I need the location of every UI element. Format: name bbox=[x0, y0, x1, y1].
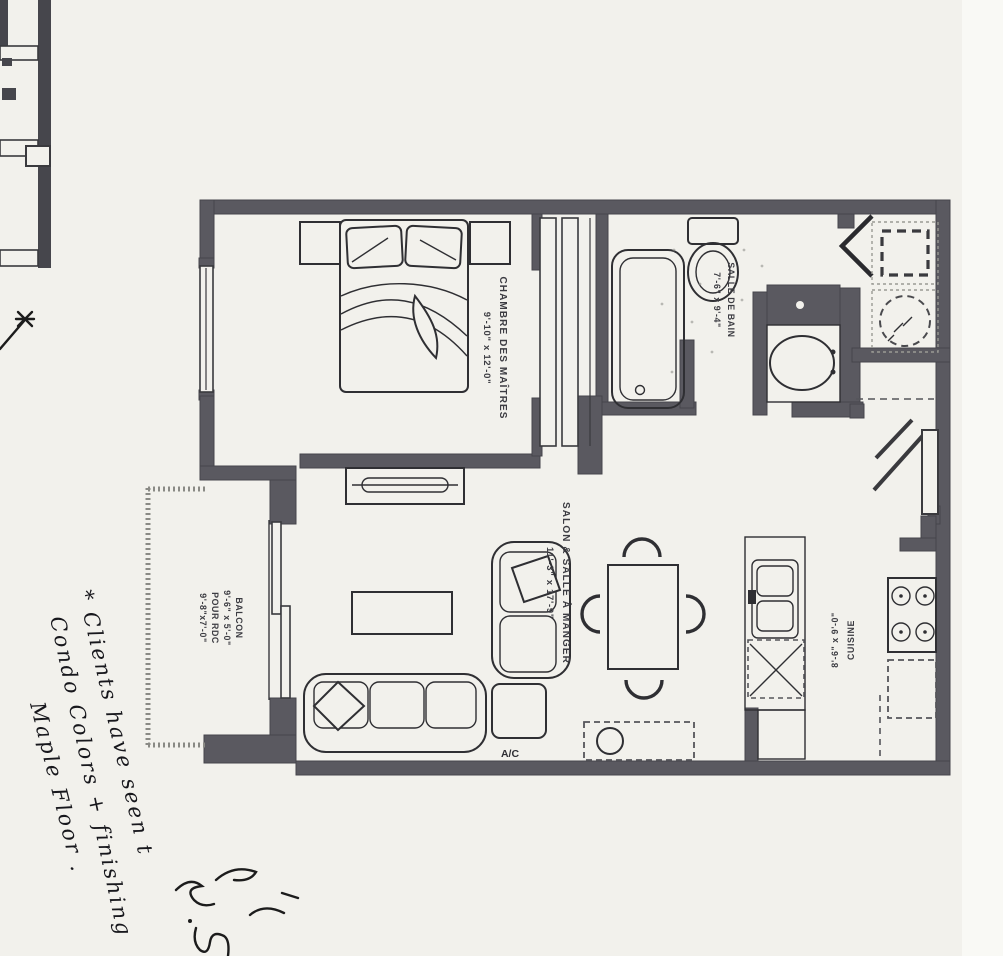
wall-balcony-door-top bbox=[270, 480, 296, 524]
kitchen-name: CUISINE bbox=[846, 620, 856, 660]
sink-faucet bbox=[748, 590, 756, 604]
faucet-dot bbox=[831, 370, 836, 375]
balcony-dims: 9'-6" x 5'-0" bbox=[222, 590, 232, 646]
wall-kitchen-neck bbox=[921, 516, 936, 540]
wall-balcony-top bbox=[200, 466, 296, 480]
closet-door-panel bbox=[922, 430, 938, 514]
wall-left-upper bbox=[200, 200, 214, 266]
bathroom-dims: 7'-6" x 9'-4" bbox=[712, 272, 722, 328]
living-room-dims: 11'-3" x 17'-9" bbox=[544, 547, 555, 619]
balcony-alt-dims: 9'-8"x7'-0" bbox=[198, 593, 208, 642]
wall-kitchen-top-right bbox=[900, 538, 936, 551]
balcony-note: POUR RDC bbox=[210, 592, 220, 644]
wall-laundry-south bbox=[852, 348, 950, 362]
wall-kitchen-stub bbox=[745, 708, 758, 761]
sliding-panel-1 bbox=[272, 522, 281, 614]
vanity-block-dot bbox=[796, 301, 804, 309]
ac-label: A/C bbox=[501, 748, 520, 760]
floor-plan-drawing: CHAMBRE DES MAÎTRES 9'-10" x 12'-0" SALL… bbox=[0, 0, 1003, 956]
wall-bedroom-south bbox=[300, 454, 540, 468]
paper-background bbox=[0, 0, 1003, 956]
scanned-floor-plan-page: CHAMBRE DES MAÎTRES 9'-10" x 12'-0" SALL… bbox=[0, 0, 1003, 956]
living-room-name: SALON & SALLE À MANGER bbox=[560, 502, 573, 664]
scan-page-edge bbox=[962, 0, 1003, 956]
wall-bottom bbox=[296, 761, 950, 775]
sliding-panel-2 bbox=[281, 606, 290, 698]
kitchen-dims: 8'-6" x 9'-0" bbox=[830, 612, 840, 668]
wall-top bbox=[200, 200, 950, 214]
wall-hall-closet-stub bbox=[850, 404, 864, 418]
bedroom-dims: 9'-10" x 12'-0" bbox=[481, 312, 492, 385]
wall-balcony-door-bottom bbox=[270, 698, 296, 738]
closet-door-panel-1 bbox=[540, 218, 556, 446]
faucet-dot bbox=[831, 350, 836, 355]
bedroom-window bbox=[200, 266, 213, 392]
bedroom-name: CHAMBRE DES MAÎTRES bbox=[497, 276, 510, 419]
bathroom-name: SALLE DE BAIN bbox=[726, 262, 736, 337]
wall-entry-stub bbox=[838, 214, 854, 228]
wall-vanity-left bbox=[753, 292, 767, 415]
balcony-name: BALCON bbox=[234, 597, 244, 638]
wall-bathroom-left bbox=[596, 214, 608, 402]
wall-balcony-bottom bbox=[204, 735, 296, 763]
closet-door-panel-2 bbox=[562, 218, 578, 446]
